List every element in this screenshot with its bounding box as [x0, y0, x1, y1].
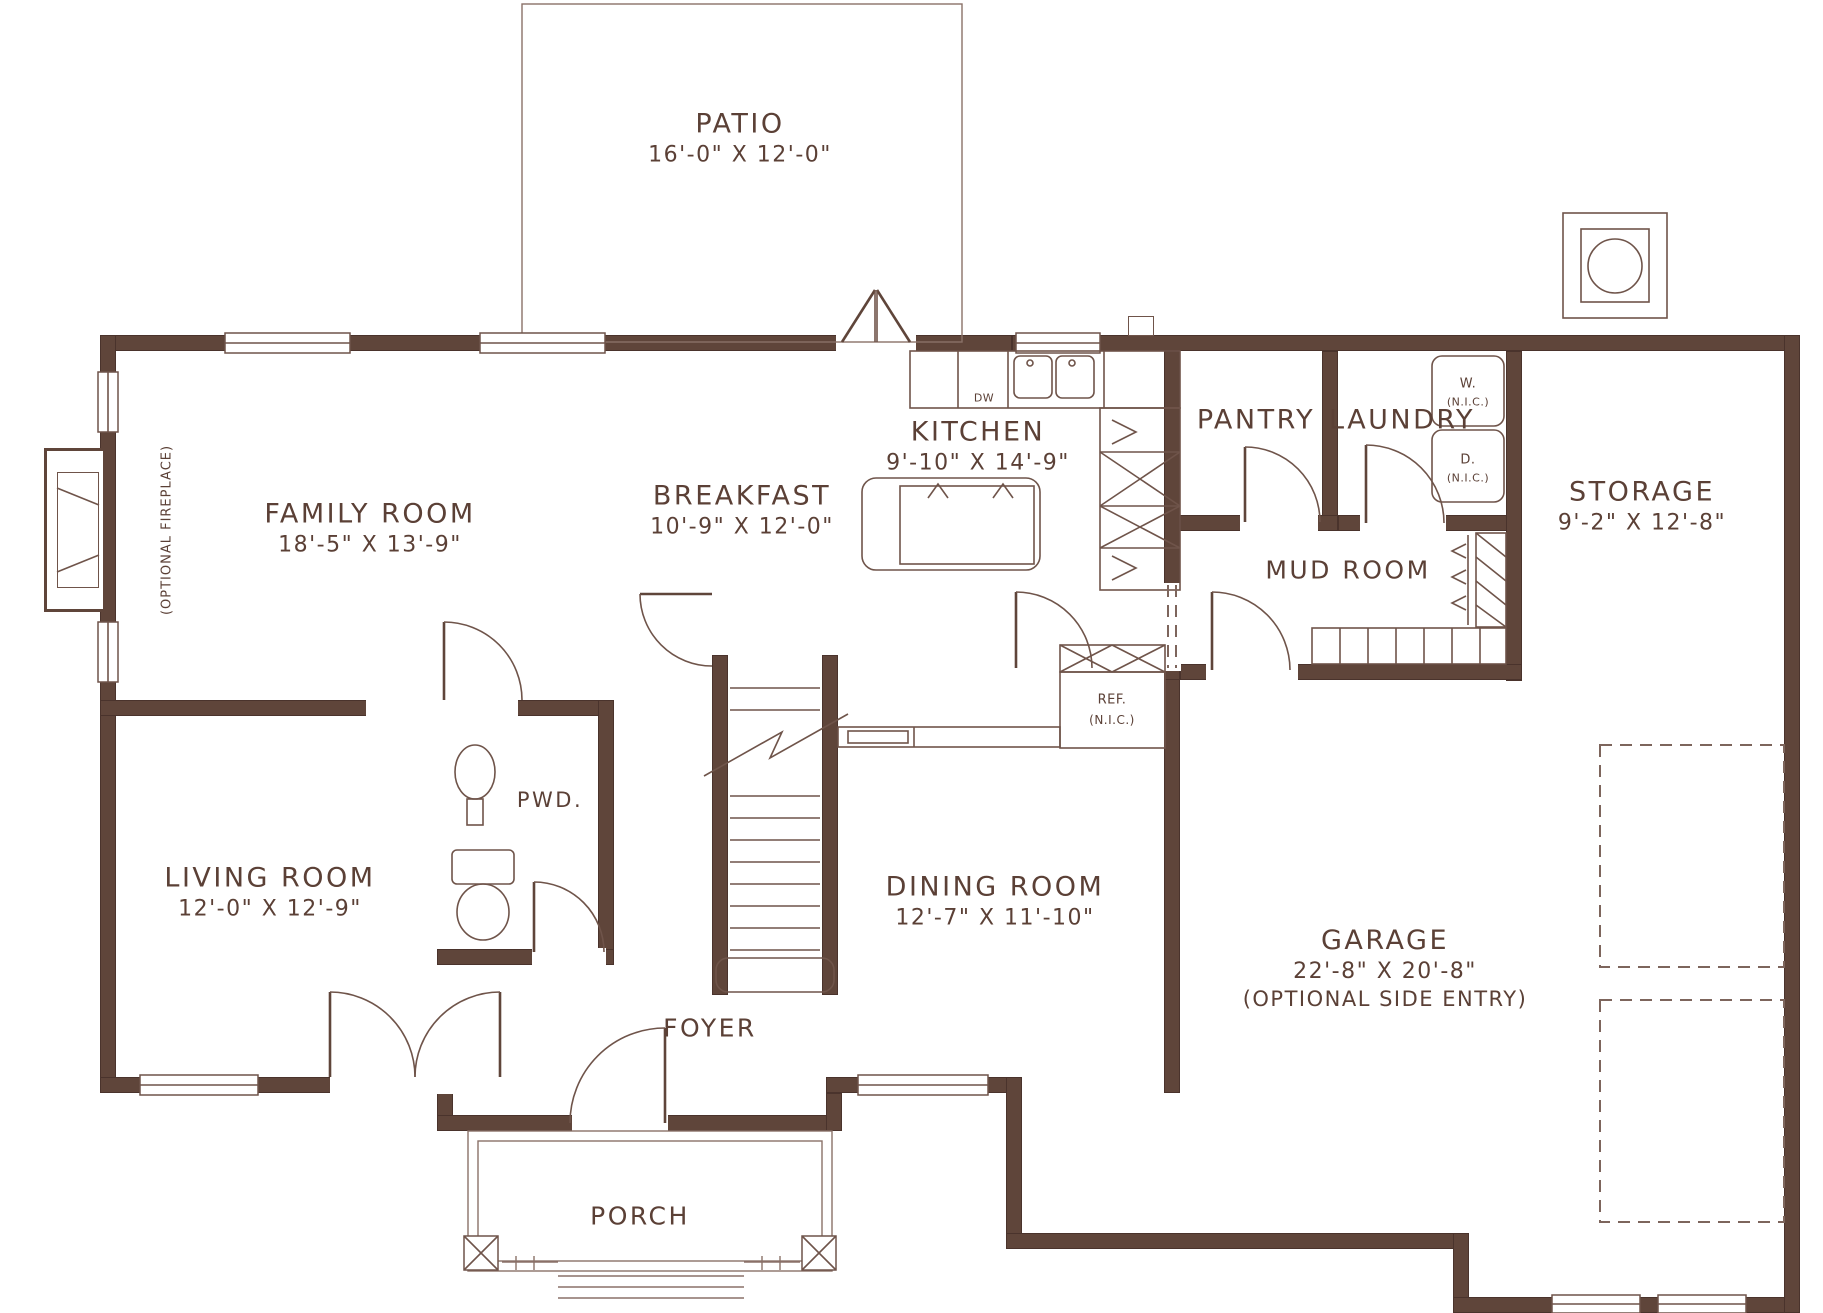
room-label-pwd: PWD.	[517, 788, 583, 812]
room-label-garage: GARAGE 22'-8" X 20'-8" (OPTIONAL SIDE EN…	[1243, 925, 1528, 1011]
chimney-detail	[1563, 213, 1667, 318]
room-label-living: LIVING ROOM 12'-0" X 12'-9"	[164, 863, 375, 922]
room-label-foyer: FOYER	[663, 1014, 757, 1043]
dashed-opening	[1168, 585, 1176, 668]
room-dims: 9'-10" X 14'-9"	[886, 451, 1070, 476]
room-label-kitchen: KITCHEN 9'-10" X 14'-9"	[886, 417, 1070, 476]
room-label-porch: PORCH	[590, 1202, 690, 1231]
plan-linework	[0, 0, 1823, 1313]
kitchen-counters	[838, 351, 1180, 748]
room-name: PWD.	[517, 788, 583, 812]
room-name: KITCHEN	[886, 417, 1070, 448]
room-dims: 12'-7" X 11'-10"	[886, 906, 1105, 931]
room-name: BREAKFAST	[650, 481, 834, 512]
room-name: PORCH	[590, 1202, 690, 1231]
room-label-storage: STORAGE 9'-2" X 12'-8"	[1558, 477, 1726, 536]
room-name: STORAGE	[1558, 477, 1726, 508]
room-label-family: FAMILY ROOM 18'-5" X 13'-9"	[264, 499, 475, 558]
washer-label: W.	[1460, 377, 1477, 392]
room-name: GARAGE	[1243, 925, 1528, 956]
room-label-mudroom: MUD ROOM	[1265, 556, 1430, 585]
dryer-nic: (N.I.C.)	[1447, 472, 1489, 485]
washer-nic: (N.I.C.)	[1447, 396, 1489, 409]
room-label-dining: DINING ROOM 12'-7" X 11'-10"	[886, 872, 1105, 931]
room-name: PANTRY	[1197, 405, 1315, 436]
room-label-pantry: PANTRY	[1197, 405, 1315, 436]
room-dims: 12'-0" X 12'-9"	[164, 897, 375, 922]
room-label-patio: PATIO 16'-0" X 12'-0"	[648, 109, 832, 168]
room-label-laundry: LAUNDRY	[1329, 405, 1475, 436]
room-name: FOYER	[663, 1014, 757, 1043]
room-dims: 18'-5" X 13'-9"	[264, 533, 475, 558]
room-dims: 22'-8" X 20'-8"	[1243, 959, 1528, 984]
room-dims: 9'-2" X 12'-8"	[1558, 511, 1726, 536]
powder-fixtures	[452, 745, 514, 940]
patio-outline	[522, 4, 962, 342]
windows	[98, 333, 1746, 1313]
stairs	[704, 688, 848, 992]
floor-plan: PATIO 16'-0" X 12'-0" FAMILY ROOM 18'-5"…	[0, 0, 1823, 1313]
room-dims: 16'-0" X 12'-0"	[648, 143, 832, 168]
room-label-breakfast: BREAKFAST 10'-9" X 12'-0"	[650, 481, 834, 540]
room-name: FAMILY ROOM	[264, 499, 475, 530]
fridge-nic: (N.I.C.)	[1089, 713, 1135, 727]
room-note: (OPTIONAL SIDE ENTRY)	[1243, 987, 1528, 1011]
room-name: PATIO	[648, 109, 832, 140]
fireplace-note: (OPTIONAL FIREPLACE)	[160, 445, 175, 615]
room-dims: 10'-9" X 12'-0"	[650, 515, 834, 540]
fridge-label: REF.	[1098, 693, 1127, 708]
room-name: DINING ROOM	[886, 872, 1105, 903]
mudroom-builtins	[1312, 533, 1506, 664]
room-name: LIVING ROOM	[164, 863, 375, 894]
room-name: MUD ROOM	[1265, 556, 1430, 585]
dishwasher-label: DW	[974, 392, 994, 405]
garage-optional-doors	[1600, 745, 1784, 1222]
fireplace-lines	[57, 488, 99, 572]
dryer-label: D.	[1460, 453, 1475, 468]
room-name: LAUNDRY	[1329, 405, 1475, 436]
